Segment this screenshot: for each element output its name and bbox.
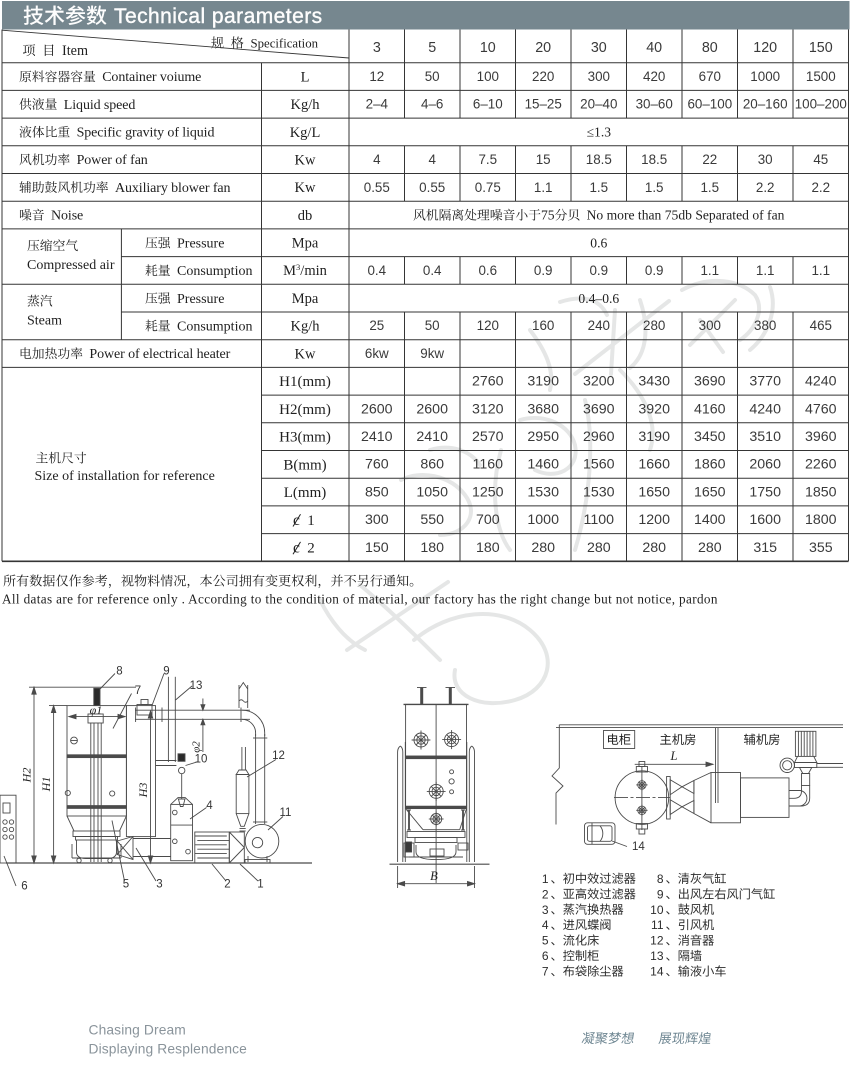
svg-text:4–6: 4–6 bbox=[421, 97, 443, 112]
svg-text:10: 10 bbox=[195, 754, 208, 766]
svg-text:2600: 2600 bbox=[416, 401, 448, 417]
svg-text:1500: 1500 bbox=[806, 69, 836, 84]
svg-text:4: 4 bbox=[542, 918, 549, 932]
svg-text:1.5: 1.5 bbox=[645, 180, 664, 195]
svg-text:2410: 2410 bbox=[361, 429, 393, 445]
svg-text:L: L bbox=[301, 69, 310, 85]
svg-text:Power of electrical heater: Power of electrical heater bbox=[89, 347, 230, 362]
svg-text:Auxiliary blower fan: Auxiliary blower fan bbox=[115, 181, 231, 196]
svg-text:180: 180 bbox=[476, 540, 500, 556]
svg-text:50: 50 bbox=[425, 318, 440, 333]
svg-text:1.1: 1.1 bbox=[700, 263, 719, 278]
svg-text:150: 150 bbox=[365, 540, 389, 556]
svg-text:1860: 1860 bbox=[694, 457, 726, 473]
svg-text:0.55: 0.55 bbox=[419, 180, 445, 195]
svg-text:/min: /min bbox=[300, 263, 327, 279]
svg-text:Pressure: Pressure bbox=[177, 236, 224, 251]
svg-text:3510: 3510 bbox=[749, 429, 781, 445]
svg-text:1050: 1050 bbox=[416, 484, 448, 500]
svg-text:8: 8 bbox=[116, 666, 122, 678]
svg-text:14: 14 bbox=[632, 841, 645, 853]
svg-text:1530: 1530 bbox=[527, 484, 559, 500]
svg-text:100–200: 100–200 bbox=[795, 97, 847, 112]
svg-text:0.75: 0.75 bbox=[475, 180, 501, 195]
svg-text:3: 3 bbox=[542, 903, 549, 917]
svg-text:7: 7 bbox=[135, 685, 141, 697]
svg-text:280: 280 bbox=[642, 540, 666, 556]
svg-text:0.9: 0.9 bbox=[645, 263, 664, 278]
svg-text:0.55: 0.55 bbox=[364, 180, 390, 195]
svg-text:9: 9 bbox=[163, 666, 169, 678]
svg-text:3770: 3770 bbox=[749, 374, 781, 390]
svg-text:13: 13 bbox=[650, 949, 664, 963]
svg-text:1800: 1800 bbox=[805, 512, 837, 528]
svg-text:850: 850 bbox=[365, 484, 389, 500]
svg-text:315: 315 bbox=[753, 540, 777, 556]
svg-text:550: 550 bbox=[420, 512, 444, 528]
svg-text:0.4: 0.4 bbox=[367, 263, 386, 278]
svg-text:6: 6 bbox=[21, 881, 27, 893]
svg-text:Kg/h: Kg/h bbox=[291, 97, 321, 113]
svg-text:Chasing Dream: Chasing Dream bbox=[89, 1023, 186, 1038]
svg-text:M: M bbox=[283, 263, 296, 279]
svg-text:2060: 2060 bbox=[749, 457, 781, 473]
svg-text:H3(mm): H3(mm) bbox=[279, 430, 331, 446]
svg-text:H1(mm): H1(mm) bbox=[279, 374, 331, 390]
svg-text:11: 11 bbox=[280, 807, 292, 819]
svg-text:18.5: 18.5 bbox=[641, 152, 667, 167]
svg-text:Kg/h: Kg/h bbox=[291, 319, 321, 335]
svg-text:14: 14 bbox=[650, 965, 664, 979]
svg-text:150: 150 bbox=[809, 40, 833, 56]
svg-text:15: 15 bbox=[536, 152, 551, 167]
svg-text:10: 10 bbox=[650, 903, 664, 917]
svg-text:3190: 3190 bbox=[638, 429, 670, 445]
svg-text:Item: Item bbox=[62, 43, 88, 59]
svg-text:670: 670 bbox=[699, 69, 721, 84]
svg-text:1: 1 bbox=[307, 513, 315, 529]
svg-text:Mpa: Mpa bbox=[292, 291, 319, 307]
svg-text:280: 280 bbox=[643, 318, 665, 333]
svg-text:30: 30 bbox=[758, 152, 773, 167]
svg-text:1.1: 1.1 bbox=[756, 263, 775, 278]
svg-text:0.4: 0.4 bbox=[423, 263, 442, 278]
svg-text:1.1: 1.1 bbox=[534, 180, 553, 195]
svg-text:Technical parameters: Technical parameters bbox=[114, 5, 323, 28]
svg-text:45: 45 bbox=[813, 152, 828, 167]
svg-text:2950: 2950 bbox=[527, 429, 559, 445]
svg-text:2: 2 bbox=[224, 879, 230, 891]
svg-text:700: 700 bbox=[476, 512, 500, 528]
svg-text:7: 7 bbox=[542, 965, 549, 979]
svg-text:Liquid speed: Liquid speed bbox=[64, 98, 136, 113]
svg-text:18.5: 18.5 bbox=[586, 152, 612, 167]
svg-text:1750: 1750 bbox=[749, 484, 781, 500]
svg-text:All datas are for reference on: All datas are for reference only . Accor… bbox=[2, 592, 718, 607]
svg-text:3200: 3200 bbox=[583, 374, 615, 390]
svg-text:db: db bbox=[298, 208, 313, 224]
svg-text:120: 120 bbox=[753, 40, 777, 56]
svg-text:0.9: 0.9 bbox=[589, 263, 608, 278]
svg-text:1250: 1250 bbox=[472, 484, 504, 500]
svg-text:1.1: 1.1 bbox=[811, 263, 830, 278]
svg-text:3690: 3690 bbox=[583, 401, 615, 417]
svg-text:H2: H2 bbox=[20, 768, 34, 784]
svg-text:Consumption: Consumption bbox=[177, 319, 252, 334]
svg-text:1.5: 1.5 bbox=[589, 180, 608, 195]
svg-text:2410: 2410 bbox=[416, 429, 448, 445]
svg-text:Consumption: Consumption bbox=[177, 264, 252, 279]
svg-text:11: 11 bbox=[651, 918, 664, 932]
svg-text:280: 280 bbox=[531, 540, 555, 556]
svg-text:Power of fan: Power of fan bbox=[77, 153, 148, 168]
svg-text:2: 2 bbox=[542, 887, 549, 901]
svg-text:4240: 4240 bbox=[749, 401, 781, 417]
svg-text:1000: 1000 bbox=[527, 512, 559, 528]
svg-text:0.6: 0.6 bbox=[590, 235, 607, 250]
svg-text:25: 25 bbox=[369, 318, 384, 333]
svg-text:3120: 3120 bbox=[472, 401, 504, 417]
svg-text:860: 860 bbox=[420, 457, 444, 473]
svg-text:2260: 2260 bbox=[805, 457, 837, 473]
svg-text:Container voiume: Container voiume bbox=[102, 70, 201, 85]
svg-text:1650: 1650 bbox=[694, 484, 726, 500]
svg-text:4160: 4160 bbox=[694, 401, 726, 417]
svg-text:240: 240 bbox=[588, 318, 610, 333]
svg-text:No more than 75db Separated of: No more than 75db Separated of fan bbox=[587, 208, 785, 223]
svg-text:420: 420 bbox=[643, 69, 665, 84]
svg-text:Size of installation for refer: Size of installation for reference bbox=[35, 469, 215, 484]
svg-text:L: L bbox=[670, 749, 678, 763]
svg-text:13: 13 bbox=[190, 680, 203, 692]
svg-text:380: 380 bbox=[754, 318, 776, 333]
svg-text:1000: 1000 bbox=[750, 69, 780, 84]
svg-text:Noise: Noise bbox=[51, 209, 83, 224]
svg-text:Kg/L: Kg/L bbox=[290, 125, 321, 141]
svg-text:3450: 3450 bbox=[694, 429, 726, 445]
svg-text:Pressure: Pressure bbox=[177, 292, 224, 307]
svg-text:180: 180 bbox=[420, 540, 444, 556]
svg-text:3690: 3690 bbox=[694, 374, 726, 390]
svg-text:5: 5 bbox=[542, 934, 549, 948]
svg-text:1200: 1200 bbox=[638, 512, 670, 528]
svg-text:1600: 1600 bbox=[749, 512, 781, 528]
svg-text:3: 3 bbox=[373, 40, 381, 56]
svg-text:300: 300 bbox=[588, 69, 610, 84]
svg-text:2570: 2570 bbox=[472, 429, 504, 445]
svg-text:760: 760 bbox=[365, 457, 389, 473]
svg-text:2.2: 2.2 bbox=[756, 180, 775, 195]
svg-text:30–60: 30–60 bbox=[636, 97, 673, 112]
svg-text:Specification: Specification bbox=[251, 37, 319, 51]
svg-text:0.9: 0.9 bbox=[534, 263, 553, 278]
svg-text:160: 160 bbox=[532, 318, 554, 333]
svg-text:0.6: 0.6 bbox=[478, 263, 497, 278]
svg-text:12: 12 bbox=[272, 750, 285, 762]
svg-text:75: 75 bbox=[541, 208, 555, 223]
svg-text:5: 5 bbox=[428, 40, 436, 56]
svg-text:4: 4 bbox=[373, 152, 381, 167]
svg-text:1400: 1400 bbox=[694, 512, 726, 528]
svg-text:465: 465 bbox=[810, 318, 832, 333]
svg-text:1560: 1560 bbox=[583, 457, 615, 473]
svg-text:20–160: 20–160 bbox=[743, 97, 788, 112]
svg-text:H2(mm): H2(mm) bbox=[279, 402, 331, 418]
svg-text:φ2: φ2 bbox=[191, 741, 203, 753]
svg-text:4: 4 bbox=[206, 800, 213, 812]
svg-text:4: 4 bbox=[428, 152, 436, 167]
svg-text:0.4–0.6: 0.4–0.6 bbox=[578, 291, 619, 306]
svg-text:10: 10 bbox=[480, 40, 496, 56]
svg-text:60–100: 60–100 bbox=[687, 97, 732, 112]
svg-text:Compressed air: Compressed air bbox=[27, 258, 115, 273]
svg-text:Kw: Kw bbox=[295, 180, 316, 196]
svg-text:B(mm): B(mm) bbox=[283, 457, 326, 473]
svg-text:Specific gravity of liquid: Specific gravity of liquid bbox=[77, 126, 215, 141]
svg-text:1650: 1650 bbox=[638, 484, 670, 500]
svg-text:6: 6 bbox=[542, 949, 549, 963]
svg-text:3190: 3190 bbox=[527, 374, 559, 390]
svg-text:3430: 3430 bbox=[638, 374, 670, 390]
svg-text:1530: 1530 bbox=[583, 484, 615, 500]
svg-text:2.2: 2.2 bbox=[811, 180, 830, 195]
svg-text:9: 9 bbox=[657, 887, 664, 901]
svg-text:300: 300 bbox=[365, 512, 389, 528]
svg-text:2760: 2760 bbox=[472, 374, 504, 390]
svg-text:22: 22 bbox=[702, 152, 717, 167]
svg-text:220: 220 bbox=[532, 69, 554, 84]
svg-text:1100: 1100 bbox=[584, 512, 615, 528]
svg-text:50: 50 bbox=[425, 69, 440, 84]
svg-text:6kw: 6kw bbox=[365, 346, 389, 361]
svg-text:355: 355 bbox=[809, 540, 833, 556]
svg-text:300: 300 bbox=[699, 318, 721, 333]
svg-text:3680: 3680 bbox=[527, 401, 559, 417]
svg-text:12: 12 bbox=[650, 934, 664, 948]
svg-text:8: 8 bbox=[657, 872, 664, 886]
svg-text:H1: H1 bbox=[39, 777, 53, 793]
svg-text:φ1: φ1 bbox=[90, 703, 103, 717]
svg-text:H3: H3 bbox=[136, 783, 150, 799]
svg-text:280: 280 bbox=[587, 540, 611, 556]
svg-text:1660: 1660 bbox=[638, 457, 670, 473]
svg-text:80: 80 bbox=[702, 40, 718, 56]
svg-text:12: 12 bbox=[369, 69, 384, 84]
svg-text:3960: 3960 bbox=[805, 429, 837, 445]
svg-text:3: 3 bbox=[156, 879, 162, 891]
svg-text:4760: 4760 bbox=[805, 401, 837, 417]
svg-text:1: 1 bbox=[542, 872, 549, 886]
svg-text:3920: 3920 bbox=[638, 401, 670, 417]
svg-text:5: 5 bbox=[123, 879, 129, 891]
svg-text:120: 120 bbox=[477, 318, 499, 333]
svg-text:1160: 1160 bbox=[473, 457, 504, 473]
svg-text:Displaying Resplendence: Displaying Resplendence bbox=[89, 1042, 248, 1057]
svg-text:20: 20 bbox=[535, 40, 551, 56]
svg-text:2960: 2960 bbox=[583, 429, 615, 445]
svg-text:15–25: 15–25 bbox=[525, 97, 562, 112]
svg-text:7.5: 7.5 bbox=[478, 152, 497, 167]
svg-text:1: 1 bbox=[257, 879, 263, 891]
svg-text:2–4: 2–4 bbox=[366, 97, 389, 112]
svg-text:2: 2 bbox=[307, 540, 315, 556]
svg-text:1460: 1460 bbox=[527, 457, 559, 473]
svg-text:≤1.3: ≤1.3 bbox=[587, 125, 612, 140]
svg-text:9kw: 9kw bbox=[420, 346, 444, 361]
svg-text:Kw: Kw bbox=[295, 346, 316, 362]
svg-text:1850: 1850 bbox=[805, 484, 837, 500]
svg-text:40: 40 bbox=[646, 40, 662, 56]
svg-text:4240: 4240 bbox=[805, 374, 837, 390]
svg-text:30: 30 bbox=[591, 40, 607, 56]
svg-text:Steam: Steam bbox=[27, 314, 62, 329]
svg-text:2600: 2600 bbox=[361, 401, 393, 417]
svg-text:Kw: Kw bbox=[295, 153, 316, 169]
svg-text:L(mm): L(mm) bbox=[284, 485, 327, 501]
svg-text:B: B bbox=[430, 869, 438, 883]
svg-text:280: 280 bbox=[698, 540, 722, 556]
svg-text:Mpa: Mpa bbox=[292, 236, 319, 252]
svg-text:6–10: 6–10 bbox=[473, 97, 503, 112]
svg-text:100: 100 bbox=[477, 69, 499, 84]
svg-text:20–40: 20–40 bbox=[580, 97, 617, 112]
svg-text:1.5: 1.5 bbox=[700, 180, 719, 195]
